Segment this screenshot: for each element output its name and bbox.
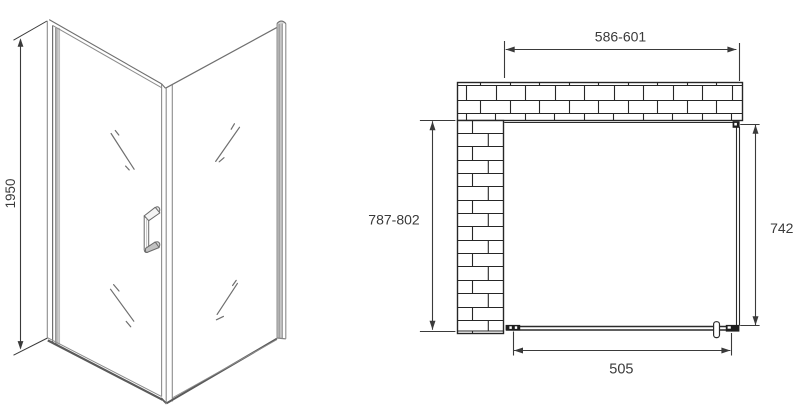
svg-text:1950: 1950 bbox=[3, 179, 18, 209]
svg-text:505: 505 bbox=[609, 361, 633, 377]
svg-text:742: 742 bbox=[770, 220, 794, 236]
svg-text:586-601: 586-601 bbox=[595, 28, 647, 44]
svg-text:787-802: 787-802 bbox=[368, 212, 420, 228]
